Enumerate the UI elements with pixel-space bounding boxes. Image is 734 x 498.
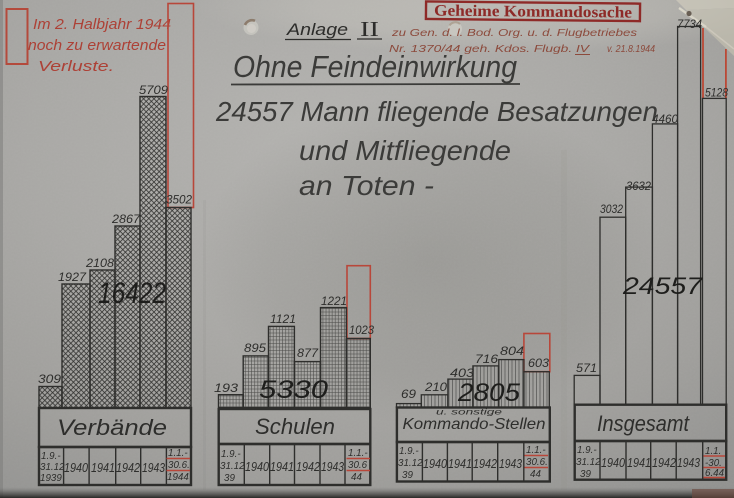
svg-text:zu Gen. d. l. Bod. Org. u. d: zu Gen. d. l. Bod. Org. u. d. Flugbetrie… bbox=[391, 28, 637, 39]
svg-text:39: 39 bbox=[224, 473, 235, 484]
svg-text:1943: 1943 bbox=[677, 455, 700, 470]
svg-text:716: 716 bbox=[475, 352, 498, 366]
svg-text:210: 210 bbox=[424, 380, 447, 394]
svg-text:30.6.: 30.6. bbox=[168, 460, 190, 471]
svg-text:31.12: 31.12 bbox=[398, 458, 423, 469]
svg-text:1023: 1023 bbox=[349, 323, 374, 337]
svg-text:1942: 1942 bbox=[296, 459, 320, 474]
svg-text:v. 21.8.1944: v. 21.8.1944 bbox=[607, 44, 655, 55]
svg-text:1941: 1941 bbox=[270, 459, 294, 474]
svg-text:Kommando-Stellen: Kommando-Stellen bbox=[403, 416, 546, 433]
svg-text:1941: 1941 bbox=[448, 456, 472, 471]
svg-text:Im 2. Halbjahr 1944: Im 2. Halbjahr 1944 bbox=[33, 16, 171, 33]
svg-text:4460: 4460 bbox=[652, 112, 678, 126]
svg-text:1942: 1942 bbox=[473, 456, 497, 471]
svg-text:Insgesamt: Insgesamt bbox=[597, 411, 690, 436]
svg-text:Schulen: Schulen bbox=[255, 414, 335, 439]
svg-text:1942: 1942 bbox=[116, 460, 140, 475]
svg-text:u. sonstige: u. sonstige bbox=[436, 407, 502, 417]
svg-text:1.1.-: 1.1.- bbox=[526, 445, 546, 456]
svg-text:1943: 1943 bbox=[499, 456, 522, 471]
svg-text:3032: 3032 bbox=[600, 202, 623, 216]
svg-text:24557: 24557 bbox=[622, 273, 704, 300]
svg-text:1.9.-: 1.9.- bbox=[577, 445, 597, 456]
svg-text:193: 193 bbox=[214, 381, 238, 395]
svg-text:31.12: 31.12 bbox=[40, 462, 65, 473]
svg-text:44: 44 bbox=[351, 472, 362, 483]
svg-text:69: 69 bbox=[401, 387, 416, 401]
svg-text:3632: 3632 bbox=[626, 179, 651, 193]
svg-text:1121: 1121 bbox=[270, 312, 296, 326]
svg-text:1.1.-: 1.1.- bbox=[168, 448, 188, 459]
svg-text:1940: 1940 bbox=[64, 460, 89, 475]
svg-text:Ohne Feindeinwirkung: Ohne Feindeinwirkung bbox=[233, 49, 517, 84]
svg-text:1940: 1940 bbox=[423, 456, 448, 471]
svg-text:309: 309 bbox=[38, 372, 61, 386]
svg-text:5709: 5709 bbox=[139, 83, 168, 97]
svg-text:24557 Mann fliegende Besatzung: 24557 Mann fliegende Besatzungen bbox=[215, 96, 658, 127]
svg-text:30.6: 30.6 bbox=[348, 460, 368, 471]
svg-text:16422: 16422 bbox=[98, 277, 166, 310]
svg-text:an Toten -: an Toten - bbox=[299, 170, 434, 201]
svg-text:1927: 1927 bbox=[58, 270, 87, 284]
svg-text:noch zu erwartende: noch zu erwartende bbox=[28, 37, 166, 54]
svg-text:2108: 2108 bbox=[85, 256, 114, 270]
svg-text:1943: 1943 bbox=[321, 459, 344, 474]
svg-text:und Mitfliegende: und Mitfliegende bbox=[299, 135, 511, 166]
svg-text:1.1.-: 1.1.- bbox=[348, 448, 368, 459]
svg-text:44: 44 bbox=[530, 469, 541, 480]
svg-text:II: II bbox=[360, 17, 379, 41]
svg-text:1941: 1941 bbox=[91, 460, 115, 475]
svg-text:Verbände: Verbände bbox=[57, 415, 167, 440]
svg-text:39: 39 bbox=[402, 470, 413, 481]
svg-text:Anlage: Anlage bbox=[286, 20, 348, 39]
svg-text:571: 571 bbox=[576, 361, 597, 375]
svg-text:Verluste.: Verluste. bbox=[38, 58, 114, 75]
svg-text:877: 877 bbox=[297, 346, 319, 360]
svg-text:1.9.-: 1.9.- bbox=[399, 446, 419, 457]
svg-text:1941: 1941 bbox=[627, 455, 651, 470]
svg-text:1942: 1942 bbox=[652, 455, 676, 470]
svg-text:1.9.-: 1.9.- bbox=[221, 449, 241, 460]
svg-text:403: 403 bbox=[450, 366, 474, 380]
svg-text:895: 895 bbox=[244, 341, 266, 355]
svg-text:1940: 1940 bbox=[245, 459, 270, 474]
svg-text:31.12: 31.12 bbox=[220, 461, 245, 472]
svg-text:39: 39 bbox=[580, 469, 591, 480]
svg-text:1944: 1944 bbox=[167, 472, 189, 483]
svg-text:1940: 1940 bbox=[601, 455, 626, 470]
svg-text:5330: 5330 bbox=[259, 376, 328, 404]
svg-text:603: 603 bbox=[528, 356, 549, 370]
svg-text:30.6.: 30.6. bbox=[526, 457, 548, 468]
svg-text:804: 804 bbox=[500, 344, 524, 358]
svg-text:31.12: 31.12 bbox=[576, 457, 601, 468]
svg-text:7734: 7734 bbox=[677, 17, 702, 31]
svg-text:1939: 1939 bbox=[40, 473, 62, 484]
svg-text:3502: 3502 bbox=[166, 193, 192, 207]
svg-text:5128: 5128 bbox=[705, 86, 728, 100]
svg-text:2867: 2867 bbox=[111, 212, 141, 226]
svg-text:Geheime Kommandosache: Geheime Kommandosache bbox=[434, 2, 632, 21]
svg-text:1221: 1221 bbox=[321, 294, 347, 308]
svg-text:1.9.-: 1.9.- bbox=[41, 451, 61, 462]
svg-text:1943: 1943 bbox=[142, 460, 165, 475]
svg-text:2805: 2805 bbox=[457, 379, 520, 407]
